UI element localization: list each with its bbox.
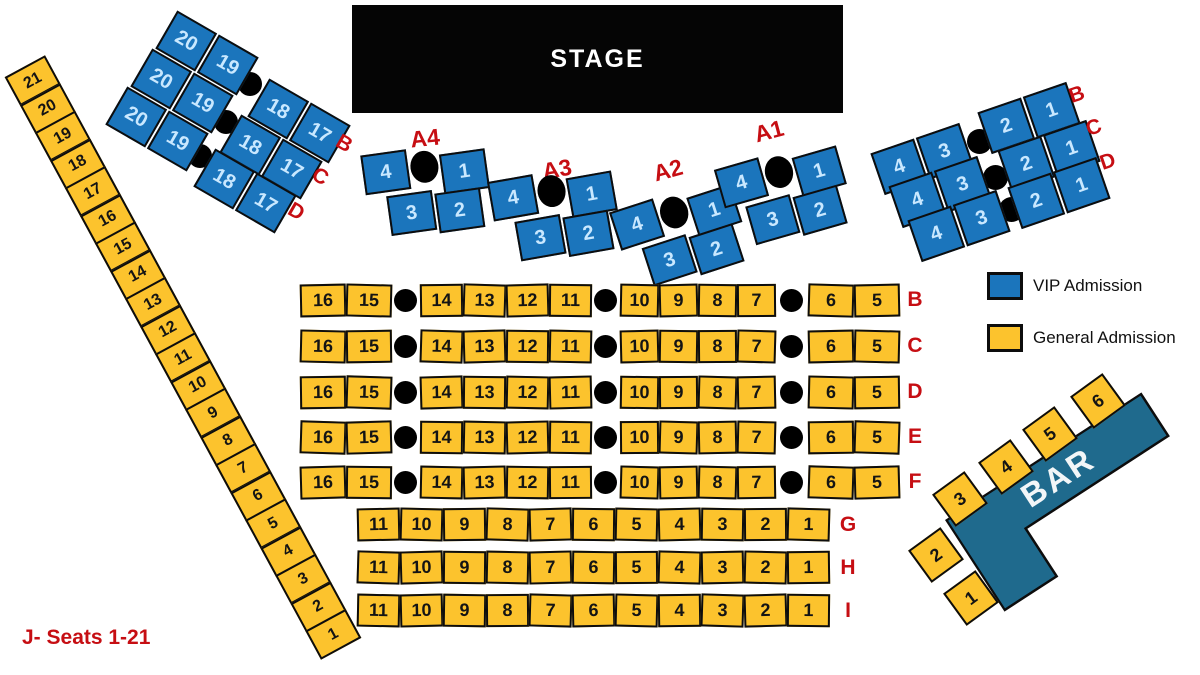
table-icon	[394, 471, 417, 494]
seat-H5[interactable]: 5	[615, 551, 658, 584]
row-label-E: E	[903, 426, 927, 448]
seat-E15[interactable]: 15	[346, 420, 393, 454]
seat-H4[interactable]: 4	[658, 550, 702, 584]
seat-D10[interactable]: 10	[620, 376, 660, 410]
legend-item-ga: General Admission	[987, 324, 1197, 352]
seat-B13[interactable]: 13	[462, 283, 506, 317]
seat-B6[interactable]: 6	[808, 283, 855, 317]
seat-B11[interactable]: 11	[549, 284, 592, 317]
seat-E7[interactable]: 7	[737, 421, 777, 455]
seat-C6[interactable]: 6	[808, 330, 855, 364]
seat-D7[interactable]: 7	[737, 376, 777, 410]
seat-D11[interactable]: 11	[549, 375, 593, 409]
table-icon	[594, 381, 617, 404]
seat-E14[interactable]: 14	[420, 421, 463, 454]
seat-C5[interactable]: 5	[854, 329, 901, 363]
seat-H10[interactable]: 10	[400, 550, 444, 584]
seat-F14[interactable]: 14	[420, 466, 464, 500]
vip-color-swatch	[987, 272, 1023, 300]
seat-B7[interactable]: 7	[737, 284, 776, 317]
seat-A4-2[interactable]: 2	[434, 187, 485, 233]
seat-B10[interactable]: 10	[620, 284, 660, 318]
seat-E16[interactable]: 16	[299, 420, 346, 454]
seat-A4-3[interactable]: 3	[386, 190, 437, 236]
row-label-B: B	[903, 289, 927, 311]
seat-I10[interactable]: 10	[400, 593, 444, 627]
seat-I2[interactable]: 2	[744, 593, 788, 627]
seat-C12[interactable]: 12	[506, 330, 549, 363]
table-icon	[594, 335, 617, 358]
ga-legend-label: General Admission	[1033, 328, 1176, 348]
legend-item-vip: VIP Admission	[987, 272, 1197, 300]
seat-E5[interactable]: 5	[853, 420, 900, 454]
seat-G4[interactable]: 4	[658, 507, 702, 541]
seat-A4-4[interactable]: 4	[360, 149, 411, 195]
seat-B5[interactable]: 5	[854, 284, 901, 318]
seat-F8[interactable]: 8	[698, 466, 738, 500]
seat-B12[interactable]: 12	[506, 283, 550, 317]
seat-G9[interactable]: 9	[443, 508, 486, 542]
seat-G10[interactable]: 10	[400, 507, 444, 541]
row-j-label: J- Seats 1-21	[22, 626, 150, 650]
seat-A3-4[interactable]: 4	[487, 174, 539, 221]
stage: STAGE	[352, 5, 843, 113]
table-label-A2: A2	[645, 153, 692, 187]
table-icon	[394, 426, 417, 449]
seat-H2[interactable]: 2	[744, 550, 788, 584]
seat-G8[interactable]: 8	[485, 507, 529, 541]
seat-G3[interactable]: 3	[701, 508, 745, 542]
seat-G2[interactable]: 2	[744, 508, 787, 541]
seat-E8[interactable]: 8	[698, 421, 738, 455]
seat-E9[interactable]: 9	[659, 420, 699, 454]
seat-I8[interactable]: 8	[486, 594, 529, 627]
seat-G6[interactable]: 6	[572, 508, 615, 541]
seat-C9[interactable]: 9	[659, 330, 699, 364]
table-icon	[394, 289, 417, 312]
legend: VIP Admission General Admission	[987, 272, 1197, 376]
row-label-H: H	[836, 557, 860, 579]
table-icon	[408, 149, 440, 185]
seat-F9[interactable]: 9	[659, 466, 699, 500]
seat-B9[interactable]: 9	[659, 284, 699, 318]
table-icon	[394, 335, 417, 358]
seat-I3[interactable]: 3	[700, 593, 744, 627]
seat-E6[interactable]: 6	[808, 421, 854, 455]
table-icon	[780, 289, 803, 312]
table-icon	[394, 381, 417, 404]
seat-F5[interactable]: 5	[854, 465, 901, 499]
table-icon	[594, 289, 617, 312]
seat-I1[interactable]: 1	[787, 594, 830, 627]
seat-D15[interactable]: 15	[345, 375, 392, 409]
stage-label: STAGE	[550, 45, 644, 74]
seat-A1-3[interactable]: 3	[745, 194, 800, 245]
seat-D6[interactable]: 6	[808, 375, 855, 409]
seat-B8[interactable]: 8	[698, 284, 738, 318]
seat-D8[interactable]: 8	[698, 375, 738, 409]
seat-C15[interactable]: 15	[346, 330, 392, 364]
seat-I11[interactable]: 11	[357, 594, 401, 628]
seat-F15[interactable]: 15	[346, 466, 392, 499]
seat-H11[interactable]: 11	[356, 550, 400, 584]
seat-C11[interactable]: 11	[549, 330, 593, 364]
seat-D12[interactable]: 12	[506, 376, 550, 410]
seat-I4[interactable]: 4	[658, 594, 701, 628]
seat-F16[interactable]: 16	[300, 465, 347, 499]
seat-G11[interactable]: 11	[357, 508, 401, 542]
seat-D9[interactable]: 9	[659, 376, 698, 409]
seat-I7[interactable]: 7	[529, 593, 573, 627]
table-icon	[780, 335, 803, 358]
seat-D13[interactable]: 13	[463, 376, 506, 409]
seat-B16[interactable]: 16	[300, 284, 347, 318]
seat-F6[interactable]: 6	[807, 465, 854, 499]
table-icon	[594, 426, 617, 449]
seat-A3-1[interactable]: 1	[566, 170, 618, 217]
table-icon	[594, 471, 617, 494]
seat-H7[interactable]: 7	[529, 550, 573, 584]
seat-D5[interactable]: 5	[854, 376, 900, 410]
seat-E12[interactable]: 12	[506, 420, 550, 454]
seat-C7[interactable]: 7	[737, 329, 777, 363]
seat-D14[interactable]: 14	[420, 375, 464, 409]
seating-chart: STAGE 20191817B20191817C20191817D 4321B4…	[0, 0, 1200, 675]
table-icon	[780, 426, 803, 449]
seat-I5[interactable]: 5	[615, 593, 659, 627]
table-label-A1: A1	[746, 114, 793, 148]
seat-A3-2[interactable]: 2	[562, 210, 614, 257]
seat-C16[interactable]: 16	[300, 329, 347, 363]
seat-E13[interactable]: 13	[463, 421, 507, 455]
seat-H8[interactable]: 8	[486, 551, 530, 585]
seat-C14[interactable]: 14	[419, 329, 463, 363]
seat-G1[interactable]: 1	[787, 507, 831, 541]
ga-color-swatch	[987, 324, 1023, 352]
row-label-F: F	[903, 471, 927, 493]
seat-E10[interactable]: 10	[620, 421, 659, 454]
row-label-D: D	[903, 381, 927, 403]
table-icon	[535, 173, 568, 209]
seat-A4-1[interactable]: 1	[439, 148, 490, 194]
seat-F7[interactable]: 7	[737, 466, 776, 500]
seat-H9[interactable]: 9	[443, 551, 486, 584]
seat-H1[interactable]: 1	[787, 551, 830, 585]
seat-C13[interactable]: 13	[463, 329, 507, 363]
seat-A1-4[interactable]: 4	[714, 157, 769, 208]
seat-B15[interactable]: 15	[346, 283, 393, 317]
seat-I9[interactable]: 9	[443, 594, 487, 628]
seat-F13[interactable]: 13	[463, 465, 507, 499]
seat-B14[interactable]: 14	[420, 284, 463, 318]
seat-F12[interactable]: 12	[506, 466, 550, 500]
vip-legend-label: VIP Admission	[1033, 276, 1142, 296]
seat-C8[interactable]: 8	[698, 330, 737, 363]
table-icon	[780, 471, 803, 494]
row-label-C: C	[903, 335, 927, 357]
seat-D16[interactable]: 16	[300, 376, 346, 410]
table-icon	[780, 381, 803, 404]
seat-H3[interactable]: 3	[701, 551, 745, 585]
seat-E11[interactable]: 11	[549, 421, 593, 455]
seat-G5[interactable]: 5	[615, 508, 659, 542]
vip-table-A1: 4132	[714, 134, 866, 259]
seat-F10[interactable]: 10	[620, 465, 660, 499]
seat-F11[interactable]: 11	[549, 466, 592, 499]
seat-A3-3[interactable]: 3	[514, 214, 566, 261]
seat-H6[interactable]: 6	[572, 551, 616, 585]
row-label-I: I	[836, 600, 860, 622]
vip-table-A4: 4132	[360, 137, 504, 246]
seat-I6[interactable]: 6	[572, 594, 616, 628]
seat-G7[interactable]: 7	[529, 507, 573, 541]
row-label-G: G	[836, 514, 860, 536]
seat-C10[interactable]: 10	[620, 330, 660, 364]
